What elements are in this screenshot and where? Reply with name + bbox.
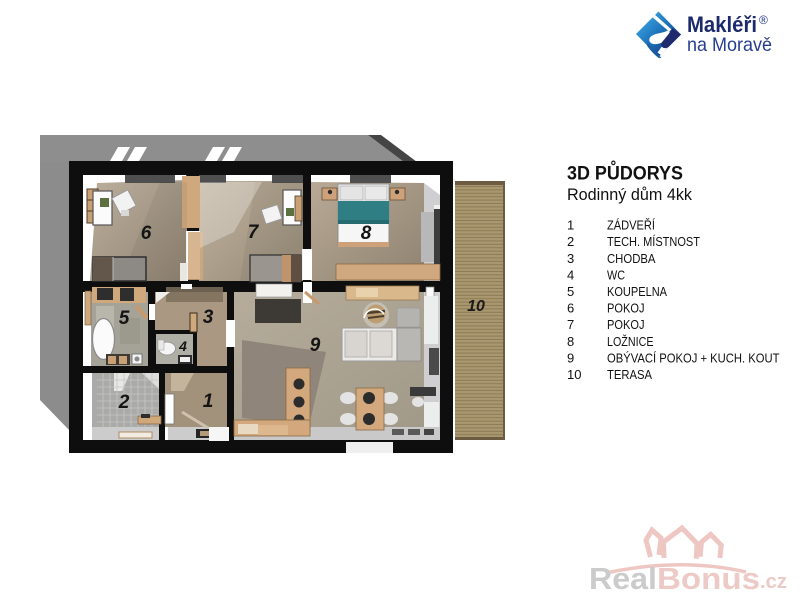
svg-text:9: 9	[310, 335, 321, 356]
svg-text:8: 8	[567, 334, 574, 349]
svg-text:5: 5	[119, 308, 130, 329]
svg-text:Real: Real	[589, 561, 657, 596]
svg-text:POKOJ: POKOJ	[607, 317, 645, 332]
svg-text:1: 1	[203, 391, 214, 412]
svg-text:®: ®	[759, 13, 768, 27]
svg-text:TERASA: TERASA	[607, 367, 652, 382]
svg-text:Rodinný dům 4kk: Rodinný dům 4kk	[567, 186, 693, 204]
svg-text:ZÁDVEŘÍ: ZÁDVEŘÍ	[607, 218, 655, 233]
svg-text:6: 6	[567, 301, 574, 316]
svg-text:3: 3	[203, 307, 214, 328]
svg-text:8: 8	[361, 223, 372, 244]
svg-text:7: 7	[567, 317, 574, 332]
svg-text:4: 4	[567, 267, 574, 282]
svg-text:9: 9	[567, 350, 574, 365]
svg-text:3: 3	[567, 251, 574, 266]
svg-text:6: 6	[141, 223, 152, 244]
svg-text:POKOJ: POKOJ	[607, 301, 645, 316]
svg-text:.cz: .cz	[760, 571, 787, 593]
svg-text:2: 2	[567, 234, 574, 249]
svg-text:CHODBA: CHODBA	[607, 251, 656, 266]
svg-text:OBÝVACÍ POKOJ + KUCH. KOUT: OBÝVACÍ POKOJ + KUCH. KOUT	[607, 350, 780, 365]
svg-text:4: 4	[178, 338, 187, 354]
svg-text:KOUPELNA: KOUPELNA	[607, 284, 667, 299]
svg-text:LOŽNICE: LOŽNICE	[607, 334, 654, 349]
svg-text:1: 1	[567, 218, 574, 233]
svg-text:7: 7	[248, 222, 260, 243]
svg-text:WC: WC	[607, 267, 625, 282]
svg-text:10: 10	[467, 298, 485, 315]
svg-text:TECH. MÍSTNOST: TECH. MÍSTNOST	[607, 234, 700, 249]
svg-text:5: 5	[567, 284, 574, 299]
svg-text:10: 10	[567, 367, 581, 382]
svg-text:2: 2	[118, 392, 130, 413]
svg-text:3D PŮDORYS: 3D PŮDORYS	[567, 159, 683, 185]
svg-text:na Moravě: na Moravě	[687, 34, 772, 56]
svg-text:Bonus: Bonus	[657, 561, 760, 596]
